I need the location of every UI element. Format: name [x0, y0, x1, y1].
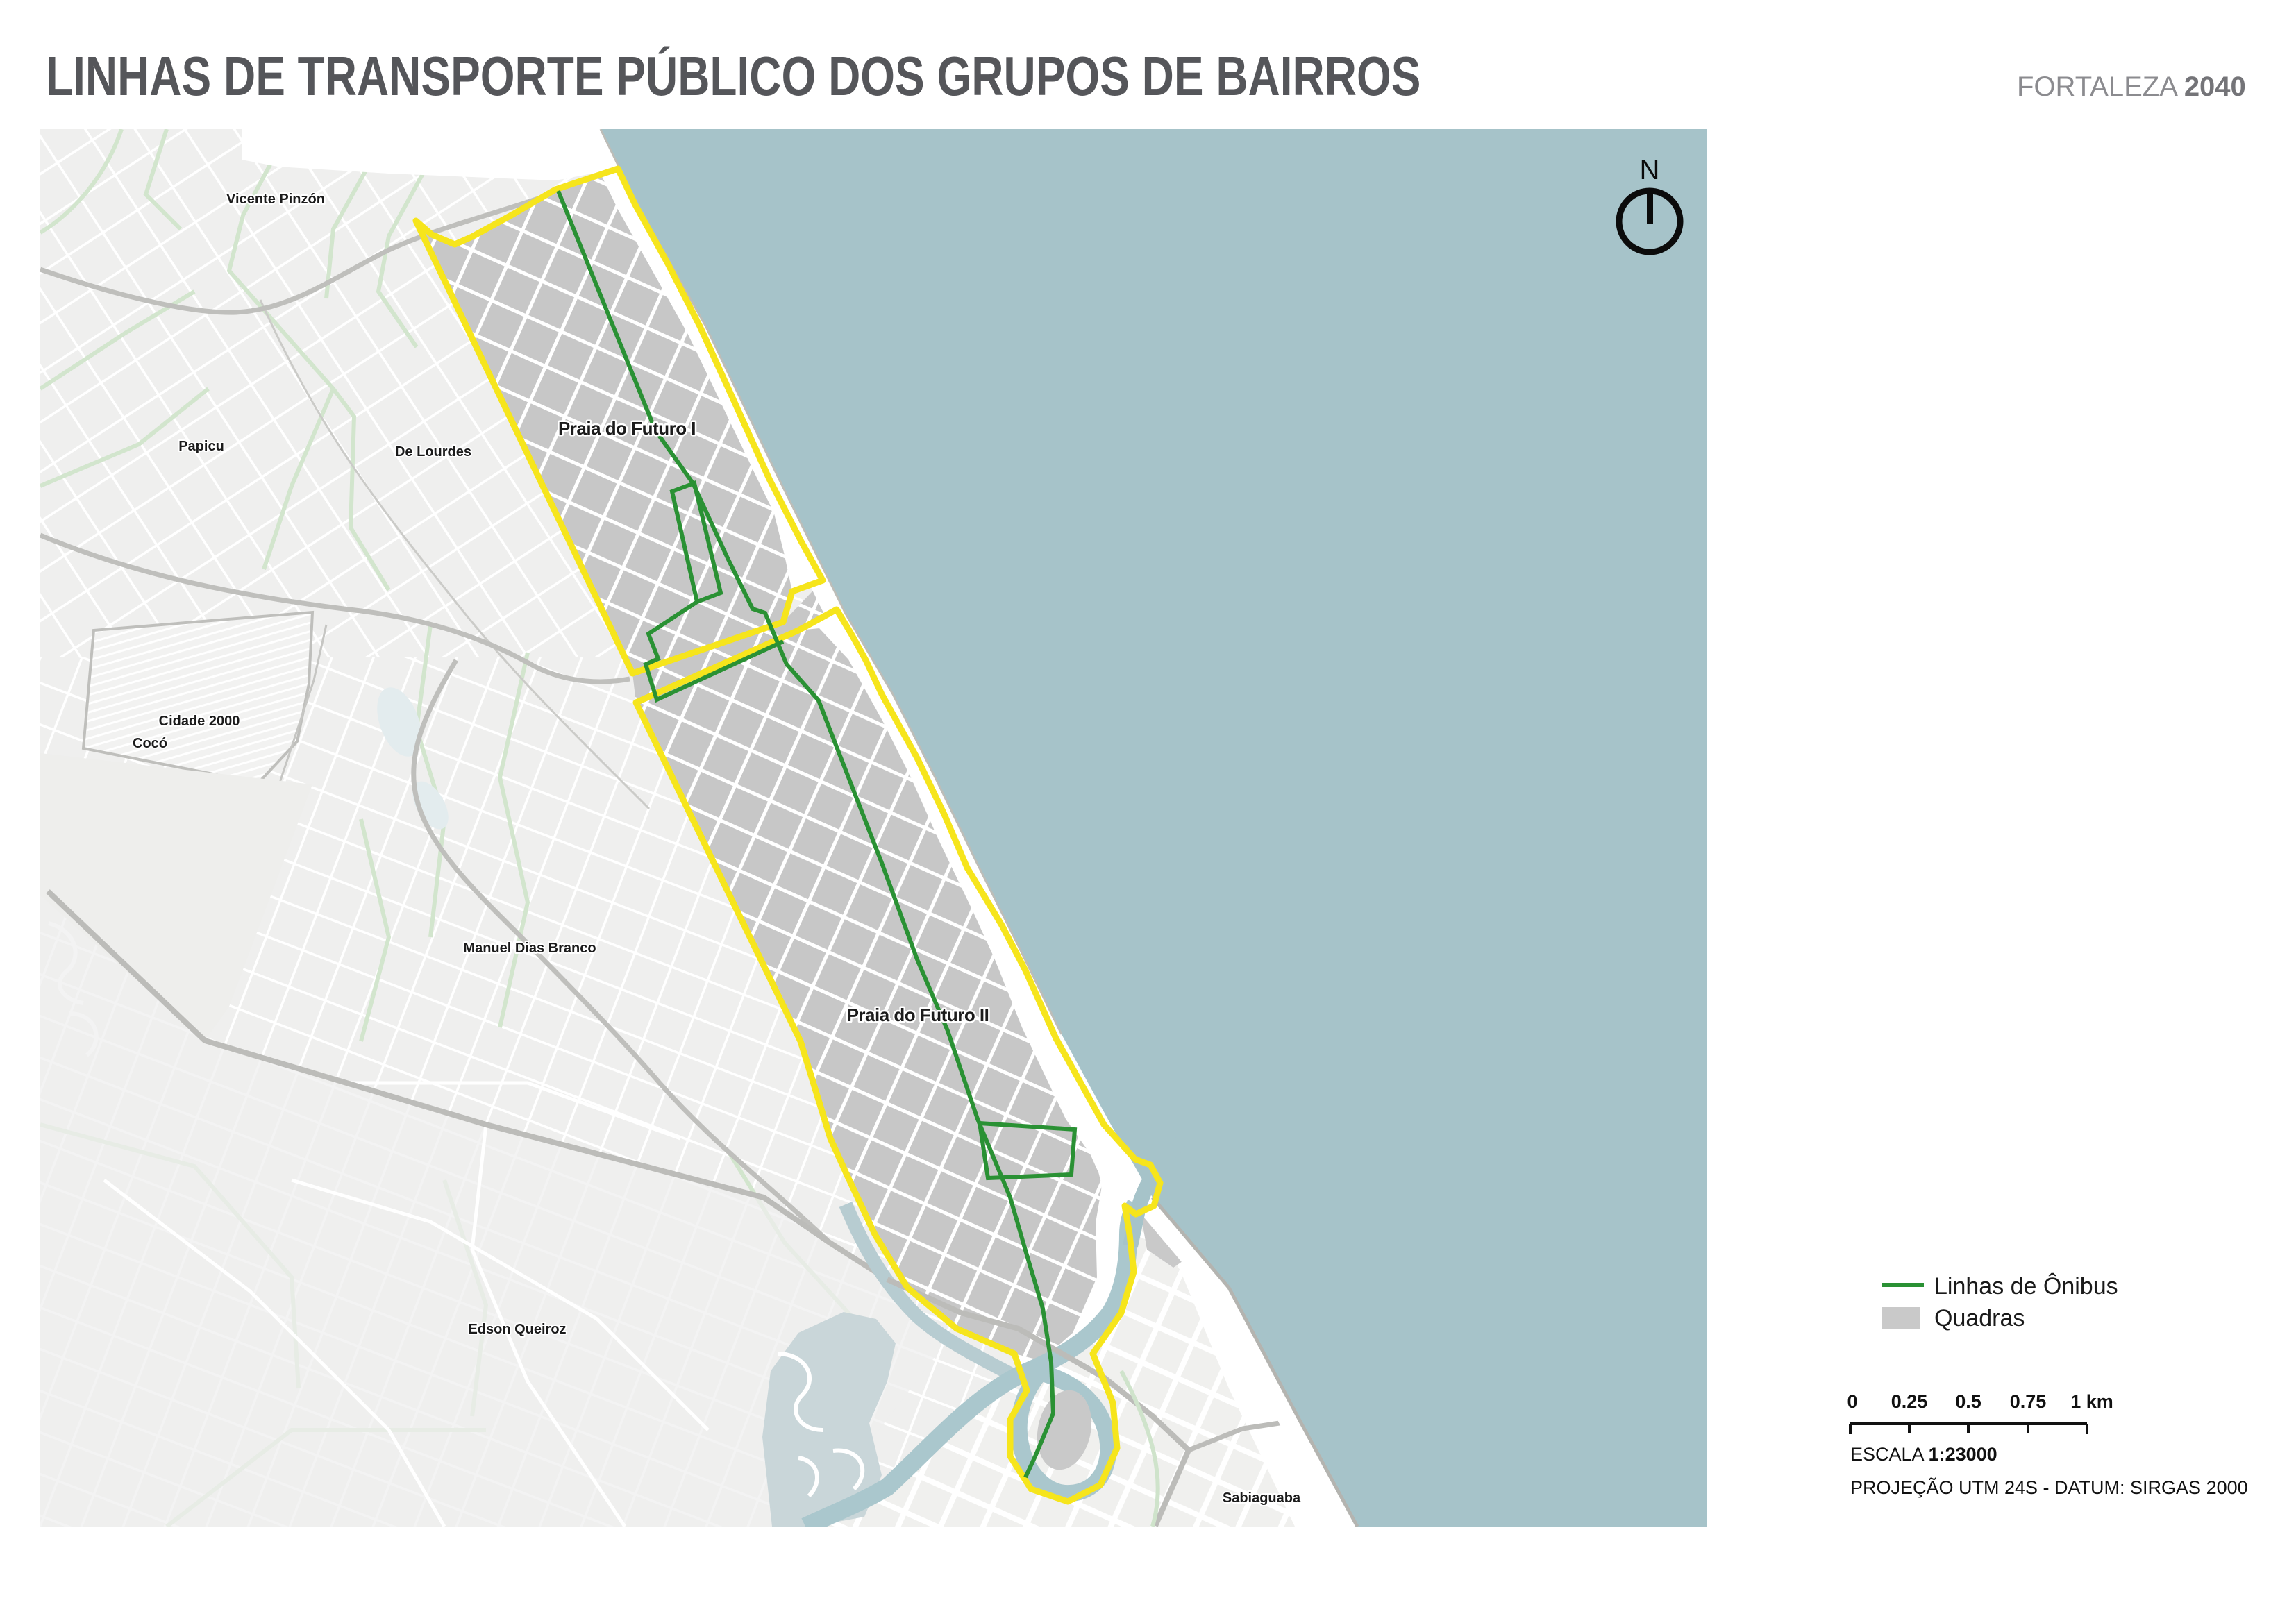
svg-text:Manuel Dias Branco: Manuel Dias Branco — [463, 941, 596, 956]
svg-text:Cidade 2000: Cidade 2000 — [159, 714, 240, 729]
svg-text:De Lourdes: De Lourdes — [395, 444, 471, 460]
svg-text:Linhas de Ônibus: Linhas de Ônibus — [1934, 1273, 2118, 1300]
svg-text:FORTALEZA 2040: FORTALEZA 2040 — [2017, 72, 2246, 102]
svg-text:1 km: 1 km — [2070, 1391, 2113, 1412]
svg-text:LINHAS DE TRANSPORTE PÚBLICO D: LINHAS DE TRANSPORTE PÚBLICO DOS GRUPOS … — [46, 45, 1421, 107]
svg-text:Sabiaguaba: Sabiaguaba — [1223, 1490, 1301, 1506]
svg-text:Vicente Pinzón: Vicente Pinzón — [226, 192, 325, 207]
svg-text:0.25: 0.25 — [1891, 1391, 1928, 1412]
svg-text:Praia do Futuro I: Praia do Futuro I — [558, 418, 696, 439]
svg-text:PROJEÇÃO UTM 24S - DATUM: SIRG: PROJEÇÃO UTM 24S - DATUM: SIRGAS 2000 — [1850, 1477, 2248, 1498]
svg-text:Praia do Futuro II: Praia do Futuro II — [847, 1004, 989, 1025]
svg-text:Quadras: Quadras — [1934, 1305, 2025, 1331]
svg-text:0: 0 — [1847, 1391, 1857, 1412]
svg-text:Cocó: Cocó — [133, 736, 167, 751]
svg-text:0.75: 0.75 — [2010, 1391, 2047, 1412]
svg-text:0.5: 0.5 — [1955, 1391, 1981, 1412]
svg-text:N: N — [1640, 155, 1660, 185]
svg-text:Papicu: Papicu — [178, 439, 224, 454]
svg-text:ESCALA 1:23000: ESCALA 1:23000 — [1850, 1444, 1997, 1465]
svg-text:Edson Queiroz: Edson Queiroz — [468, 1322, 566, 1337]
